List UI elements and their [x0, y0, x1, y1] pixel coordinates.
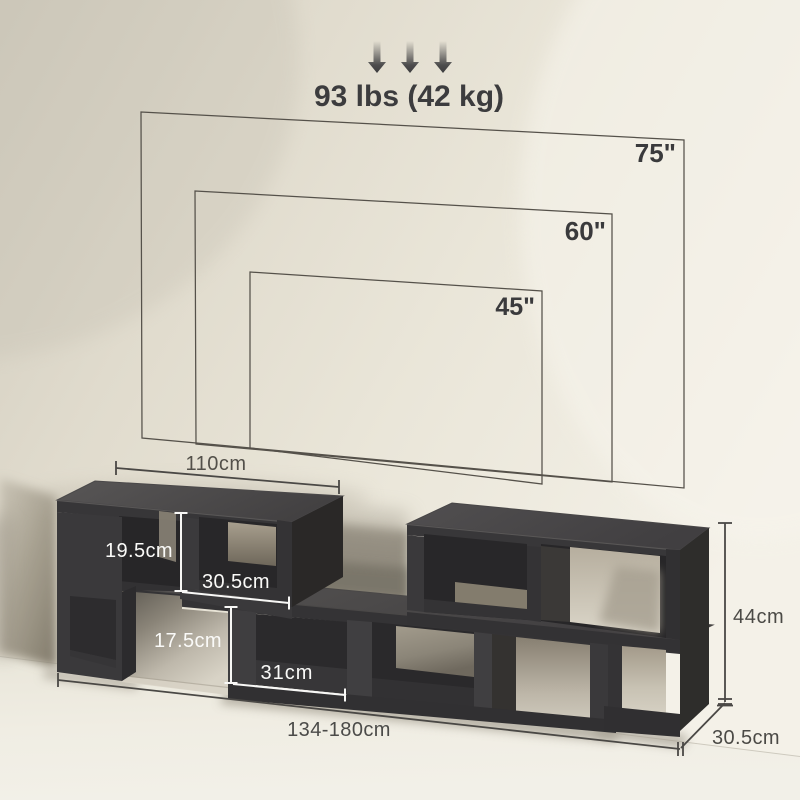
svg-text:45": 45" — [495, 293, 535, 321]
svg-text:60": 60" — [565, 216, 606, 246]
svg-text:134-180cm: 134-180cm — [287, 719, 391, 741]
svg-text:93 lbs (42 kg): 93 lbs (42 kg) — [314, 80, 504, 113]
svg-text:19.5cm: 19.5cm — [105, 540, 173, 562]
svg-text:30.5cm: 30.5cm — [202, 571, 270, 593]
svg-text:44cm: 44cm — [733, 606, 784, 628]
svg-text:30.5cm: 30.5cm — [712, 727, 780, 749]
svg-text:17.5cm: 17.5cm — [154, 630, 222, 652]
svg-text:110cm: 110cm — [185, 453, 246, 475]
svg-text:75": 75" — [635, 138, 676, 168]
svg-text:31cm: 31cm — [261, 662, 314, 684]
